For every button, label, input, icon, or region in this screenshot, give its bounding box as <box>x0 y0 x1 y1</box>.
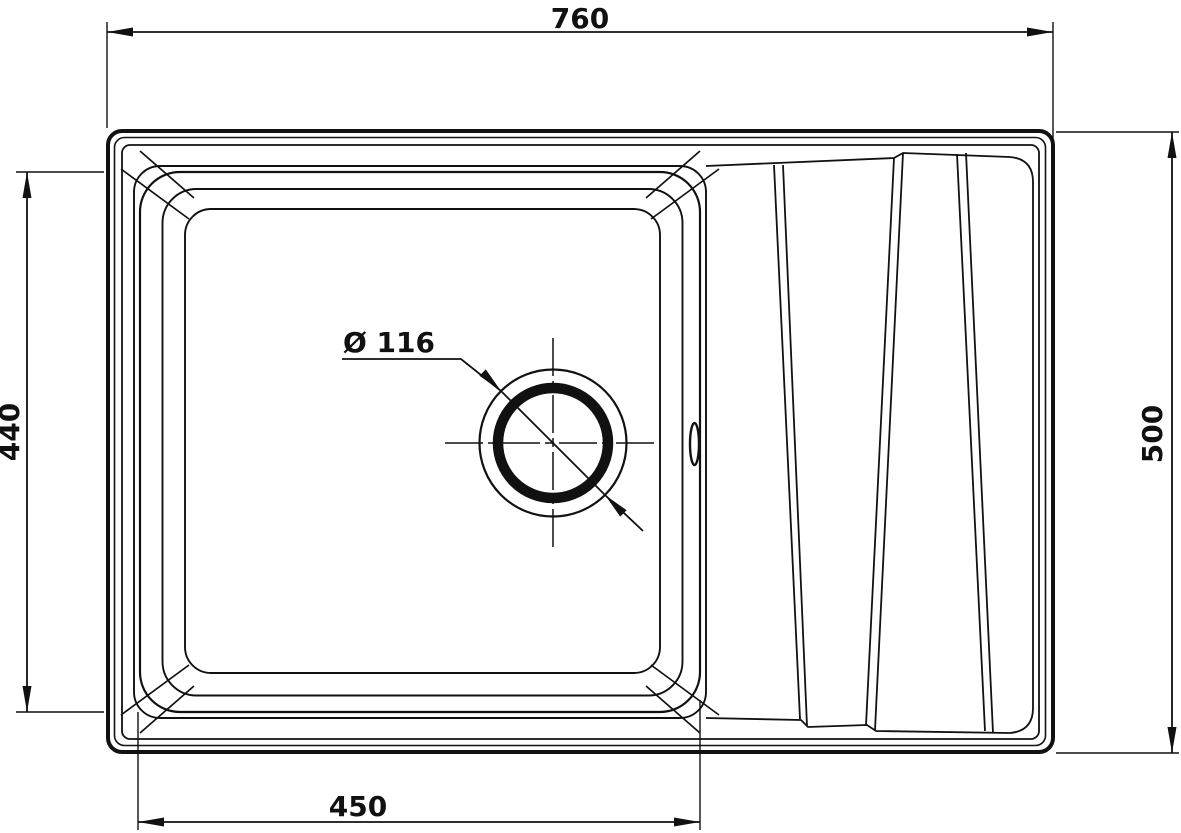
dimension-bowl-width <box>138 700 700 830</box>
sink-dimension-drawing: 760 500 440 450 Ø 116 <box>0 0 1181 833</box>
dim-label-bowl-depth: 440 <box>0 403 26 461</box>
sink-bowl <box>121 151 719 733</box>
overflow-slot <box>690 423 699 465</box>
drainboard-groove-3 <box>957 153 993 733</box>
sink-outer-body <box>108 131 1053 752</box>
drain-hole <box>342 338 658 548</box>
dimension-bowl-depth <box>16 172 104 712</box>
drainboard <box>706 153 1033 733</box>
dim-label-overall-depth: 500 <box>1136 405 1169 463</box>
dimension-overall-width <box>107 22 1053 140</box>
dim-label-bowl-width: 450 <box>329 790 387 823</box>
drainboard-groove-2 <box>866 153 903 730</box>
drainboard-groove-1 <box>774 165 807 726</box>
bowl-corner-chamfer-lines <box>121 151 719 733</box>
dim-label-overall-width: 760 <box>551 2 609 35</box>
dim-label-drain-diameter: Ø 116 <box>343 326 435 359</box>
technical-drawing-page: 760 500 440 450 Ø 116 <box>0 0 1181 833</box>
